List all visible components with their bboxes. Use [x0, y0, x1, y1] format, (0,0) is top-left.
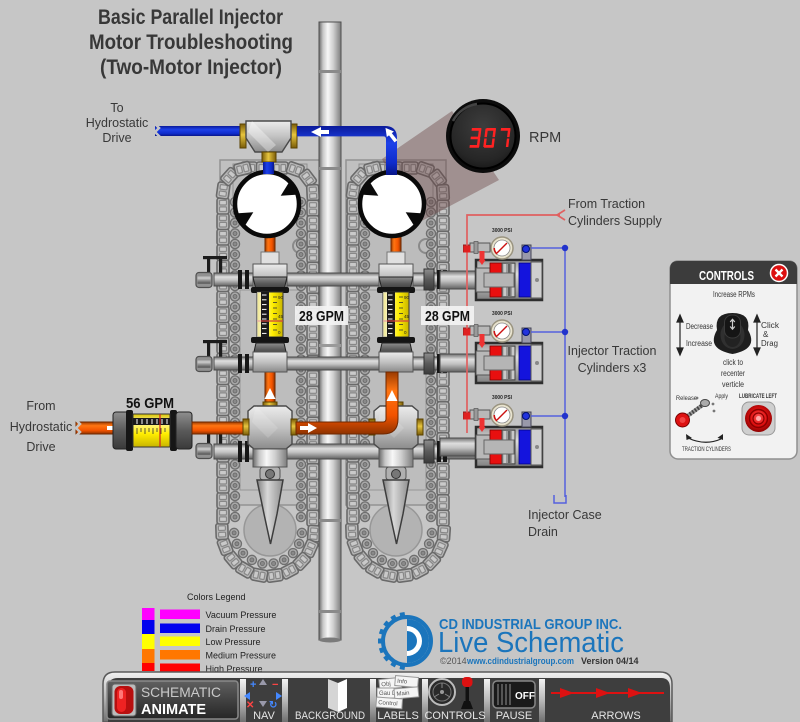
- svg-text:45: 45: [404, 314, 410, 319]
- svg-text:OFF: OFF: [515, 691, 535, 702]
- svg-text:LUBRICATE LEFT: LUBRICATE LEFT: [739, 393, 777, 400]
- svg-text:Main: Main: [396, 691, 409, 698]
- svg-text:verticle: verticle: [722, 380, 744, 389]
- svg-text:Drain: Drain: [528, 525, 558, 539]
- svg-text:56 GPM: 56 GPM: [126, 395, 174, 412]
- svg-text:Colors Legend: Colors Legend: [187, 592, 246, 602]
- svg-text:Vacuum Pressure: Vacuum Pressure: [206, 610, 277, 620]
- svg-text:90: 90: [404, 295, 410, 300]
- svg-text:Medium Pressure: Medium Pressure: [206, 651, 277, 661]
- svg-text:Cylinders Supply: Cylinders Supply: [568, 214, 663, 228]
- svg-text:SCHEMATIC: SCHEMATIC: [141, 684, 221, 700]
- svg-text:BACKGROUND: BACKGROUND: [295, 710, 365, 722]
- svg-text:TRACTION CYLINDERS: TRACTION CYLINDERS: [682, 446, 731, 453]
- svg-text:Version 04/14: Version 04/14: [581, 656, 639, 666]
- svg-text:Hydrostatic: Hydrostatic: [10, 420, 73, 434]
- svg-text:Info: Info: [397, 679, 408, 686]
- svg-text:PAUSE: PAUSE: [496, 710, 532, 722]
- svg-text:ANIMATE: ANIMATE: [141, 701, 206, 718]
- svg-text:Obj: Obj: [381, 681, 391, 688]
- svg-text:−: −: [272, 679, 278, 691]
- svg-text:Injector Traction: Injector Traction: [568, 344, 657, 358]
- svg-text:From: From: [26, 399, 55, 413]
- svg-text:ARROWS: ARROWS: [591, 710, 641, 722]
- svg-text:Decrease: Decrease: [686, 322, 713, 331]
- svg-text:Low Pressure: Low Pressure: [206, 637, 261, 647]
- svg-text:Drain Pressure: Drain Pressure: [206, 624, 266, 634]
- svg-text:RPM: RPM: [529, 130, 561, 146]
- svg-text:3000 PSI: 3000 PSI: [492, 311, 512, 317]
- svg-text:CONTROLS: CONTROLS: [699, 268, 754, 283]
- svg-text:©2014: ©2014: [440, 656, 467, 666]
- svg-text:+: +: [250, 679, 256, 691]
- svg-text:3000 PSI: 3000 PSI: [492, 395, 512, 401]
- svg-text:Live Schematic: Live Schematic: [438, 627, 624, 659]
- svg-text:Release: Release: [676, 395, 697, 402]
- svg-text:Drive: Drive: [26, 440, 55, 454]
- svg-text:Hydrostatic: Hydrostatic: [86, 116, 149, 130]
- svg-text:45: 45: [278, 314, 284, 319]
- svg-text:Drive: Drive: [102, 131, 131, 145]
- svg-text:Apply: Apply: [715, 393, 729, 400]
- svg-text:28 GPM: 28 GPM: [425, 308, 470, 325]
- svg-text:Basic Parallel Injector: Basic Parallel Injector: [98, 6, 283, 29]
- svg-text:28 GPM: 28 GPM: [299, 308, 344, 325]
- svg-text:Click: Click: [761, 321, 780, 330]
- svg-text:3000 PSI: 3000 PSI: [492, 228, 512, 234]
- svg-text:CONTROLS: CONTROLS: [424, 710, 485, 722]
- svg-text:(Two-Motor Injector): (Two-Motor Injector): [100, 56, 282, 79]
- svg-text:www.cdindustrialgroup.com: www.cdindustrialgroup.com: [466, 656, 574, 666]
- svg-text:Increase: Increase: [686, 339, 712, 348]
- svg-text:From Traction: From Traction: [568, 197, 645, 211]
- svg-text:Motor Troubleshooting: Motor Troubleshooting: [89, 31, 293, 54]
- svg-text:Drag: Drag: [761, 339, 778, 348]
- svg-text:To: To: [110, 101, 123, 115]
- svg-text:click to: click to: [723, 358, 743, 367]
- svg-text:&: &: [763, 330, 769, 339]
- svg-text:NAV: NAV: [253, 710, 275, 722]
- svg-text:Cylinders x3: Cylinders x3: [578, 361, 647, 375]
- svg-text:recenter: recenter: [721, 369, 745, 378]
- svg-text:90: 90: [278, 295, 284, 300]
- svg-text:LABELS: LABELS: [377, 710, 419, 722]
- svg-text:Increase RPMs: Increase RPMs: [713, 290, 755, 299]
- svg-text:Injector Case: Injector Case: [528, 508, 602, 522]
